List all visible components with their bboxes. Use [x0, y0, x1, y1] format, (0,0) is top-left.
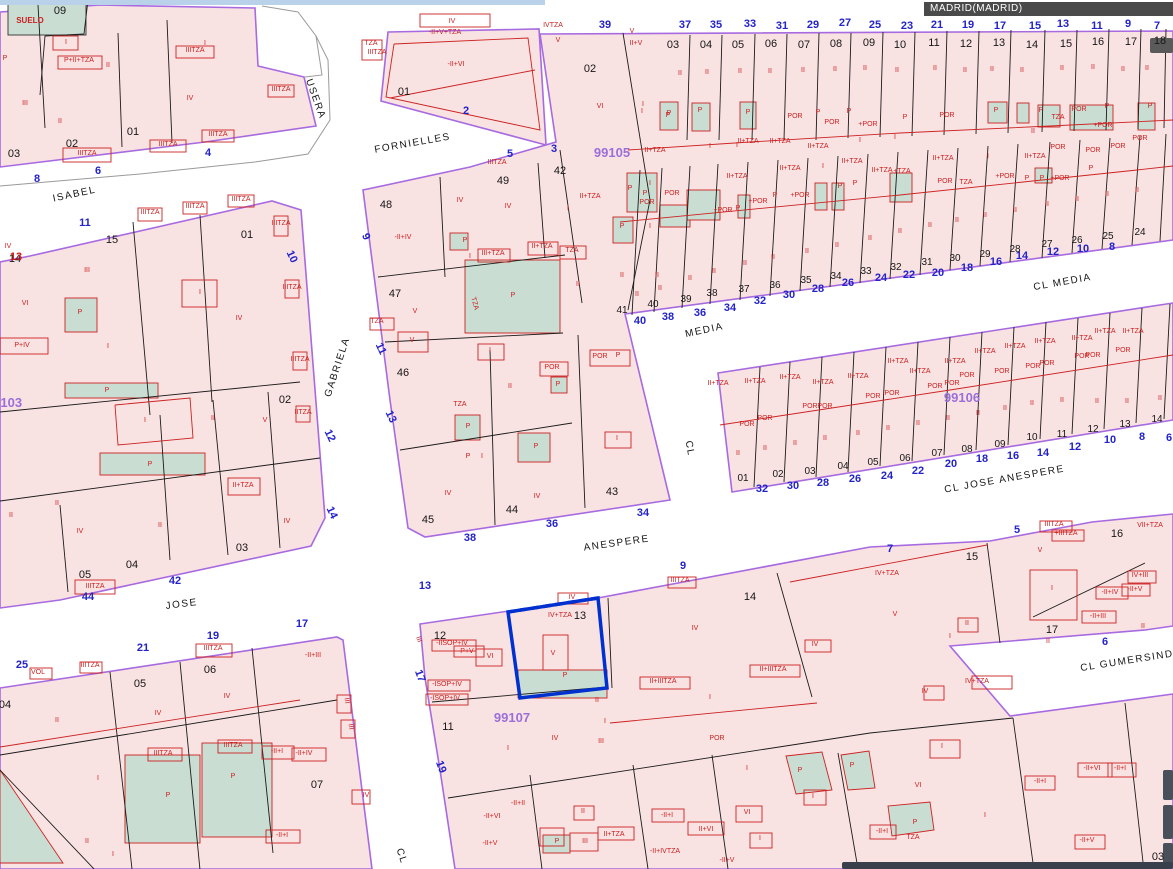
parcel-number: 02 — [772, 469, 784, 480]
street-number: 24 — [875, 272, 888, 284]
street-number: 25 — [869, 19, 881, 31]
height-code-label: I — [859, 137, 861, 144]
height-code-label: V — [1038, 547, 1043, 554]
cadastral-map[interactable]: 8641110121491113424425211917253393735333… — [0, 0, 1173, 869]
parcel-number: 35 — [800, 275, 812, 286]
street-number: 34 — [724, 302, 737, 314]
height-code-label: P — [231, 773, 236, 780]
height-code-label: IV — [236, 315, 243, 322]
height-code-label: V — [263, 417, 268, 424]
height-code-label: P — [667, 110, 672, 117]
height-code-label: TZA — [1051, 114, 1065, 121]
height-code-label: IIITZA — [158, 141, 177, 148]
street-number: 12 — [1069, 441, 1081, 453]
height-code-label: IV — [534, 493, 541, 500]
height-code-label: II — [898, 228, 902, 235]
height-code-label: II — [768, 68, 772, 75]
height-code-label: II — [1045, 201, 1049, 208]
street-number: 26 — [849, 473, 861, 485]
height-code-label: IIITZA — [271, 220, 290, 227]
street-number: 18 — [961, 262, 973, 274]
height-code-label: II — [211, 415, 215, 422]
height-code-label: I — [759, 835, 761, 842]
height-code-label: V — [410, 337, 415, 344]
height-code-label: II — [1095, 398, 1099, 405]
height-code-label: -II+I — [271, 748, 283, 755]
height-code-label: II+TZA — [1034, 338, 1056, 345]
height-code-label: +TZA — [893, 168, 911, 175]
height-code-label: POR — [865, 393, 880, 400]
height-code-label: II — [763, 445, 767, 452]
street-name: CL GUMERSINDO — [1080, 647, 1173, 674]
height-code-label: IIITZA — [77, 150, 96, 157]
height-code-label: -II+V+TZA — [429, 29, 462, 36]
height-code-label: IV — [187, 95, 194, 102]
street-name: FORNIELLES — [374, 131, 452, 155]
height-code-label: II — [158, 522, 162, 529]
height-code-label: II — [1141, 623, 1145, 630]
street-number: 7 — [887, 543, 893, 555]
parcel-number: 07 — [798, 39, 810, 51]
parcel-number: 49 — [497, 175, 509, 187]
height-code-label: P — [466, 423, 471, 430]
parcel-number: 11 — [928, 37, 939, 49]
street-number: 23 — [901, 20, 913, 32]
parcel-number: 40 — [647, 299, 659, 310]
height-code-label: P — [105, 387, 110, 394]
height-code-label: IV — [457, 197, 464, 204]
height-code-label: VI — [487, 653, 494, 660]
height-code-label: II — [805, 248, 809, 255]
height-code-label: POR — [544, 364, 559, 371]
height-code-label: P — [698, 107, 703, 114]
parcel-number: 10 — [1026, 432, 1038, 443]
height-code-label: IIITZA — [203, 645, 222, 652]
height-code-label: II — [1121, 66, 1125, 73]
height-code-label: I — [709, 694, 711, 701]
height-code-label: II — [58, 118, 62, 125]
height-code-label: -II+I — [1114, 765, 1126, 772]
block-id-label: 99105 — [594, 145, 630, 160]
height-code-label: II — [771, 254, 775, 261]
height-code-label: P — [838, 183, 843, 190]
height-code-label: I — [204, 40, 206, 47]
parcel-number: 38 — [706, 288, 718, 299]
height-code-label: II+TZA — [726, 173, 748, 180]
parcel-number: 16 — [1092, 36, 1104, 48]
ui-overlay — [842, 862, 1173, 869]
height-code-label: III+TZA — [481, 250, 504, 257]
height-code-label: II+IIITZA — [759, 666, 786, 673]
height-code-label: POR — [787, 113, 802, 120]
parcel-number: 06 — [899, 453, 911, 464]
height-code-label: +POR — [790, 192, 809, 199]
height-code-label: -II+IV — [296, 750, 313, 757]
parcel-number: 14 — [1026, 39, 1038, 51]
height-code-label: IIITZA — [153, 750, 172, 757]
street-number: 29 — [807, 19, 819, 31]
height-code-label: P — [620, 223, 625, 230]
parcel-number: 36 — [769, 280, 781, 291]
parcel-number: 03 — [8, 148, 20, 160]
height-code-label: POR — [739, 421, 754, 428]
parcel-number: 18 — [1154, 35, 1166, 47]
height-code-label: I — [949, 633, 951, 640]
height-code-label: II+TZA — [579, 193, 601, 200]
height-code-label: I — [97, 775, 99, 782]
height-code-label: II+TZA — [1024, 153, 1046, 160]
street-number: 12 — [322, 428, 338, 444]
height-code-label: -II+VI — [484, 813, 501, 820]
height-code-label: IITZA — [294, 409, 311, 416]
street-number: 40 — [634, 315, 646, 327]
street-number: 21 — [137, 642, 149, 654]
parcel-number: 01 — [737, 473, 749, 484]
height-code-label: P — [463, 237, 468, 244]
height-code-label: POR — [1085, 147, 1100, 154]
parcel-number: 06 — [204, 664, 216, 676]
height-code-label: IVTZA — [543, 22, 563, 29]
height-code-label: IIITZA — [208, 131, 227, 138]
height-code-label: II+TZA — [944, 358, 966, 365]
height-code-label: I — [649, 223, 651, 230]
height-code-label: V — [413, 308, 418, 315]
height-code-label: II — [886, 425, 890, 432]
street-number: 9 — [680, 560, 686, 572]
street-number: 9 — [1125, 18, 1131, 30]
parcel-number: 17 — [1046, 624, 1058, 636]
height-code-label: II — [835, 242, 839, 249]
street-name: CL — [394, 847, 409, 865]
height-code-label: POR — [1039, 360, 1054, 367]
height-code-label: II — [688, 275, 692, 282]
height-code-label: II+TZA — [779, 165, 801, 172]
street-number: 7 — [1154, 20, 1160, 32]
height-code-label: -IISOP+IV — [436, 640, 468, 647]
height-code-label: P — [847, 108, 852, 115]
street-number: 22 — [903, 269, 915, 281]
height-code-label: II+TZA — [779, 374, 801, 381]
parcel-number: 02 — [66, 138, 78, 150]
height-code-label: P — [78, 309, 83, 316]
height-code-label: IIITZA — [231, 196, 250, 203]
height-code-label: TZA — [906, 834, 920, 841]
height-code-label: II — [1125, 398, 1129, 405]
parcel-number: 34 — [830, 271, 842, 282]
height-code-label: II — [712, 268, 716, 275]
height-code-label: IIITZA — [80, 662, 99, 669]
height-code-label: II — [801, 67, 805, 74]
height-code-label: IV — [692, 625, 699, 632]
height-code-label: POR — [709, 735, 724, 742]
height-code-label: IV — [552, 735, 559, 742]
height-code-label: +POR — [713, 207, 732, 214]
height-code-label: II — [1158, 395, 1162, 402]
parcel-number: 07 — [311, 779, 323, 791]
street-number: 3 — [551, 143, 557, 155]
height-code-label: I — [746, 765, 748, 772]
street-number: 38 — [662, 311, 674, 323]
street-number: 16 — [1007, 450, 1019, 462]
height-code-label: II+V — [630, 40, 643, 47]
street-edge-line — [262, 6, 322, 77]
height-code-label: P — [773, 192, 778, 199]
height-code-label: -II+V — [1080, 837, 1095, 844]
height-code-label: II+TZA — [847, 373, 869, 380]
parcel-number: 15 — [106, 234, 118, 246]
height-code-label: II+TZA — [841, 158, 863, 165]
height-code-label: IIITZA — [1044, 521, 1063, 528]
height-code-label: II — [705, 69, 709, 76]
street-number: 8 — [1139, 431, 1145, 443]
height-code-label: SUELO — [16, 16, 44, 25]
parcel-number: 45 — [422, 514, 434, 526]
height-code-label: VI — [22, 300, 29, 307]
street-number: 37 — [679, 19, 691, 31]
height-code-label: V — [551, 650, 556, 657]
height-code-label: II — [1013, 207, 1017, 214]
parcel-number: 12 — [1087, 424, 1099, 435]
height-code-label: II — [1003, 405, 1007, 412]
height-code-label: II — [655, 272, 659, 279]
courtyard — [1017, 103, 1029, 123]
parcel-number: 08 — [830, 38, 842, 50]
height-code-label: I — [469, 253, 471, 260]
height-code-label: II — [678, 70, 682, 77]
height-code-label: II — [1145, 65, 1149, 72]
height-code-label: POR — [944, 380, 959, 387]
height-code-label: P — [166, 792, 171, 799]
height-code-label: +POR — [1093, 122, 1112, 129]
height-code-label: -II+IV — [1102, 589, 1119, 596]
height-code-label: IIITZA — [290, 356, 309, 363]
street-number: 18 — [976, 453, 988, 465]
street-number: 20 — [932, 267, 944, 279]
courtyard — [125, 755, 200, 843]
height-code-label: II — [743, 260, 747, 267]
courtyard — [65, 383, 158, 398]
parcel-number: 04 — [700, 39, 712, 51]
height-code-label: P+V — [460, 648, 474, 655]
height-code-label: II+TZA — [807, 143, 829, 150]
height-code-label: II — [508, 383, 512, 390]
street-number: 5 — [1014, 524, 1020, 536]
street-number: 30 — [783, 289, 795, 301]
height-code-label: II — [635, 291, 639, 298]
height-code-label: II — [823, 435, 827, 442]
height-code-label: POR — [1025, 363, 1040, 370]
height-code-label: I — [144, 417, 146, 424]
parcel-number: 26 — [1071, 235, 1083, 246]
height-code-label: P — [853, 180, 858, 187]
street-number: 25 — [16, 659, 28, 671]
street-name: CL — [683, 440, 697, 457]
street-number: 21 — [931, 19, 943, 31]
height-code-label: II — [55, 500, 59, 507]
height-code-label: P — [148, 461, 153, 468]
parcel-number: 04 — [837, 461, 849, 472]
street-number: 27 — [839, 17, 851, 29]
street-number: 24 — [881, 470, 894, 482]
block-id-label: 99103 — [0, 395, 22, 410]
height-code-label: IV — [812, 641, 819, 648]
height-code-label: IV — [505, 203, 512, 210]
height-code-label: P — [850, 762, 855, 769]
height-code-label: -II+V — [720, 857, 735, 864]
street-number: 19 — [962, 19, 974, 31]
height-code-label: +IIITZA — [1054, 530, 1077, 537]
height-code-label: II — [856, 430, 860, 437]
height-code-label: -II+II — [511, 800, 525, 807]
height-code-label: IV — [922, 688, 929, 695]
height-code-label: P — [563, 672, 568, 679]
height-code-label: P — [534, 443, 539, 450]
street-number: 36 — [546, 518, 558, 530]
ui-overlay — [1163, 770, 1173, 800]
street-number: 17 — [296, 618, 308, 630]
height-code-label: II+VI — [699, 826, 714, 833]
parcel-number: 14 — [744, 591, 756, 603]
parcel-number: 47 — [389, 288, 401, 300]
street-number: 30 — [787, 480, 799, 492]
parcel-number: 42 — [554, 165, 566, 177]
street-name: ISABEL — [52, 185, 97, 205]
street-number: 31 — [776, 20, 788, 32]
height-code-label: IIITZA — [487, 159, 506, 166]
height-code-label: II+TZA — [1094, 328, 1116, 335]
street-name: ANESPERE — [583, 533, 650, 553]
height-code-label: VI — [915, 782, 922, 789]
parcel-number: 05 — [134, 678, 146, 690]
parcel-number: 09 — [863, 37, 875, 49]
block-id-label: 99107 — [494, 710, 530, 725]
height-code-label: II — [581, 808, 585, 815]
street-number: 4 — [205, 147, 212, 159]
height-code-label: II — [738, 68, 742, 75]
height-code-label: II+TZA — [531, 243, 553, 250]
city-block[interactable] — [0, 201, 325, 608]
height-code-label: IIITZA — [85, 583, 104, 590]
street-name: CL JOSE ANESPERE — [944, 464, 1066, 496]
height-code-label: I — [199, 289, 201, 296]
height-code-label: IIITZA — [223, 742, 242, 749]
height-code-label: IV+TZA — [965, 678, 989, 685]
height-code-label: POR — [592, 353, 607, 360]
parcel-number: 05 — [732, 39, 744, 51]
height-code-label: POR — [639, 199, 654, 206]
parcel-number: 11 — [442, 721, 453, 733]
height-code-label: POR — [937, 178, 952, 185]
height-code-label: I — [507, 745, 509, 752]
height-code-label: VOL — [31, 669, 45, 676]
height-code-label: P — [798, 767, 803, 774]
cadastral-viewer: 8641110121491113424425211917253393735333… — [0, 0, 1173, 869]
height-code-label: IV — [224, 693, 231, 700]
parcel-number: 15 — [966, 551, 978, 563]
street-number: 22 — [912, 465, 924, 477]
height-code-label: II+IIITZA — [649, 678, 676, 685]
height-code-label: -II+III — [1090, 613, 1106, 620]
height-code-label: TZA — [370, 318, 384, 325]
height-code-label: II — [955, 217, 959, 224]
height-code-label: II — [595, 697, 599, 704]
height-code-label: IV — [569, 594, 576, 601]
height-code-label: II — [55, 717, 59, 724]
height-code-label: VI — [597, 103, 604, 110]
height-code-label: +POR — [748, 198, 767, 205]
street-number: 39 — [599, 19, 611, 31]
height-code-label: -II+VI — [448, 61, 465, 68]
height-code-label: 13 — [10, 251, 22, 263]
height-code-label: I — [489, 347, 491, 354]
parcel-number: 05 — [79, 569, 91, 581]
height-code-label: II — [1060, 397, 1064, 404]
height-code-label: I — [649, 180, 651, 187]
height-code-label: II+TZA — [974, 348, 996, 355]
street-number: 28 — [812, 283, 824, 295]
height-code-label: I — [984, 812, 986, 819]
height-code-label: P — [1148, 103, 1153, 110]
street-number: 2 — [463, 105, 469, 117]
height-code-label: I — [987, 153, 989, 160]
height-code-label: II+TZA — [744, 378, 766, 385]
street-number: 34 — [637, 507, 650, 519]
height-code-label: VII+TZA — [1137, 522, 1163, 529]
parcel-number: 03 — [667, 39, 679, 51]
street-number: 11 — [1091, 20, 1103, 32]
height-code-label: II — [965, 620, 969, 627]
courtyard — [890, 173, 912, 202]
height-code-label: II+TZA — [644, 147, 666, 154]
height-code-label: II — [933, 65, 937, 72]
height-code-label: TZA — [565, 247, 579, 254]
parcel-number: 28 — [1009, 244, 1021, 255]
street-number: 13 — [419, 580, 431, 592]
parcel-number: 03 — [1152, 851, 1164, 863]
height-code-label: I — [112, 851, 114, 858]
height-code-label: II — [863, 65, 867, 72]
height-code-label: II — [576, 281, 580, 288]
height-code-label: II — [1030, 400, 1034, 407]
height-code-label: -II+I — [276, 832, 288, 839]
parcel-number: 02 — [279, 394, 291, 406]
street-number: 32 — [756, 483, 768, 495]
height-code-label: I — [642, 101, 644, 108]
street-number: 17 — [994, 20, 1006, 32]
height-code-label: P — [3, 55, 8, 62]
parcel-number: 06 — [765, 38, 777, 50]
height-code-label: II — [1135, 187, 1139, 194]
height-code-label: POR — [664, 190, 679, 197]
block-id-label: 99106 — [944, 390, 980, 405]
parcel-number: 13 — [574, 610, 586, 622]
street-name: GABRIELA — [323, 336, 353, 398]
height-code-label: II — [9, 512, 13, 519]
height-code-label: IV+TZA — [548, 612, 572, 619]
height-code-label: III — [22, 100, 28, 107]
parcel-number: 27 — [1041, 239, 1053, 250]
street-name: JOSE — [165, 597, 198, 612]
height-code-label: IIITZA — [140, 209, 159, 216]
height-code-label: I — [604, 718, 606, 725]
height-code-label: P — [556, 381, 561, 388]
height-code-label: -ISOP+IV — [430, 695, 460, 702]
height-code-label: I — [616, 435, 618, 442]
parcel-number: 01 — [241, 229, 253, 241]
height-code-label: II — [916, 420, 920, 427]
street-name: MEDIA — [684, 321, 725, 340]
parcel-number: 24 — [1134, 227, 1146, 238]
